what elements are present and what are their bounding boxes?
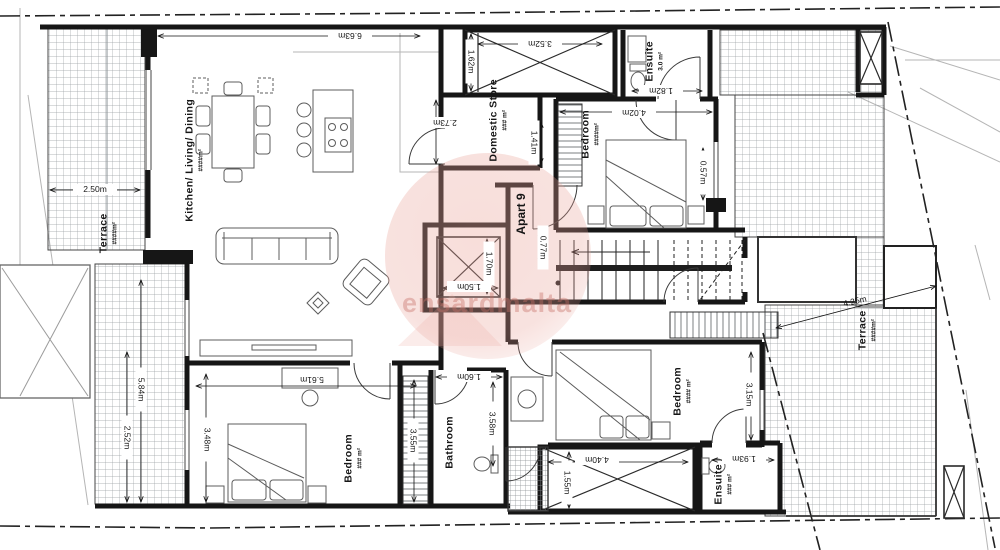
room-area: #### m² bbox=[686, 356, 693, 426]
room-name: Ensuite bbox=[713, 464, 725, 505]
dim-shaft-top-width: 3.52m bbox=[518, 38, 562, 49]
dim-store-height: 2.73m bbox=[423, 117, 467, 128]
room-label-domestic-store: Domestic Store ### m² bbox=[485, 78, 510, 162]
room-name: Domestic Store bbox=[488, 79, 500, 162]
dim-bedroom-left-depth: 3.48m bbox=[202, 418, 213, 462]
dim-hall-width: 0.77m bbox=[538, 226, 549, 270]
room-label-bedroom-top: Bedroom ####m² bbox=[577, 99, 602, 169]
room-label-bedroom-right: Bedroom #### m² bbox=[669, 356, 694, 426]
dim-shaft-bottom-depth: 1.55m bbox=[562, 461, 573, 505]
dim-store-depth: 1.41m bbox=[529, 121, 540, 165]
room-name: Bedroom bbox=[580, 110, 592, 159]
d im-lift-width: 1.50m bbox=[447, 281, 491, 292]
room-label-ensuite-top: Ensuite 3.0 m² bbox=[641, 29, 666, 93]
room-name: Bedroom bbox=[343, 434, 355, 483]
adjacent-roof bbox=[0, 265, 90, 398]
apartment-label: Apart 9 bbox=[514, 184, 528, 244]
room-area: ####m² bbox=[198, 75, 205, 245]
dim-terrace-left-len2: 2.52m bbox=[122, 416, 133, 460]
dim-wall-step: 0.57m bbox=[698, 151, 709, 195]
dim-lift-depth: 1.70m bbox=[484, 242, 495, 286]
dim-ensuite-top-width: 1.82m bbox=[639, 85, 683, 96]
room-label-bedroom-left: Bedroom ### m² bbox=[340, 423, 365, 493]
room-area: ### m² bbox=[502, 78, 509, 162]
dim-ensuite-bottom-width: 1.93m bbox=[722, 453, 766, 464]
room-area: ####m² bbox=[112, 196, 119, 270]
dim-bedroom-top-width: 4.02m bbox=[612, 107, 656, 118]
room-name: Bathroom bbox=[444, 416, 456, 469]
dim-wardrobe-len: 3.55m bbox=[408, 419, 419, 463]
tiled-lobby bbox=[508, 447, 548, 511]
room-name: Terrace bbox=[857, 310, 869, 350]
staircase bbox=[556, 240, 746, 300]
room-area: ### m² bbox=[357, 423, 364, 493]
floorplan-page: ensardmalta Kitchen/ Living/ Dining ####… bbox=[0, 0, 1000, 550]
room-area: 3.0 m² bbox=[658, 29, 665, 93]
dim-shaft-top-depth: 1.62m bbox=[466, 40, 477, 84]
room-name: Terrace bbox=[98, 213, 110, 253]
room-name: Kitchen/ Living/ Dining bbox=[184, 99, 196, 222]
dim-bathroom-width: 1.60m bbox=[447, 371, 491, 382]
dim-terrace-right-width: 3.15m bbox=[744, 373, 755, 417]
dim-bedroom-left-width: 5.61m bbox=[290, 374, 334, 385]
room-name: Ensuite bbox=[644, 41, 656, 82]
room-area: ####m² bbox=[594, 99, 601, 169]
room-label-terrace-left: Terrace ####m² bbox=[95, 196, 120, 270]
dim-bathroom-len: 3.58m bbox=[487, 402, 498, 446]
dim-shaft-bottom-width: 4.40m bbox=[575, 454, 619, 465]
dim-living-width: 6.63m bbox=[328, 30, 372, 41]
room-name: Bedroom bbox=[672, 367, 684, 416]
room-label-kitchen-living-dining: Kitchen/ Living/ Dining ####m² bbox=[181, 75, 206, 245]
room-area: ####m² bbox=[871, 293, 878, 367]
dim-terrace-left-width: 2.50m bbox=[73, 184, 117, 195]
dim-terrace-left-len1: 5.84m bbox=[136, 368, 147, 412]
room-label-bathroom: Bathroom bbox=[441, 407, 458, 477]
